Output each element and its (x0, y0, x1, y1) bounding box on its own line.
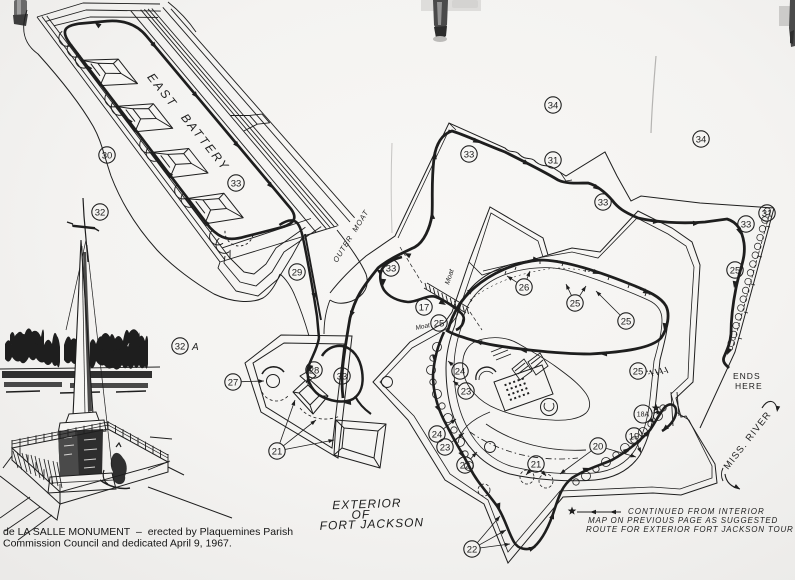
svg-text:25: 25 (570, 298, 581, 309)
svg-text:22: 22 (460, 460, 471, 471)
svg-text:A: A (191, 342, 199, 353)
svg-text:33: 33 (231, 178, 242, 189)
svg-text:31: 31 (548, 155, 559, 166)
svg-text:26: 26 (519, 282, 530, 293)
svg-text:22: 22 (467, 544, 478, 555)
svg-text:19: 19 (629, 431, 640, 442)
svg-text:24: 24 (432, 429, 443, 440)
svg-text:33: 33 (598, 197, 609, 208)
svg-text:de LA SALLE MONUMENT – erect: de LA SALLE MONUMENT – erected by Plaque… (3, 526, 293, 538)
svg-text:23: 23 (440, 442, 451, 453)
svg-text:25: 25 (633, 366, 644, 377)
svg-text:ENDS: ENDS (733, 371, 761, 381)
svg-text:29: 29 (292, 267, 303, 278)
svg-text:33: 33 (741, 219, 752, 230)
svg-text:30: 30 (102, 150, 113, 161)
svg-text:24: 24 (455, 366, 466, 377)
svg-text:32: 32 (95, 207, 106, 218)
svg-text:21: 21 (531, 459, 542, 470)
svg-text:18A: 18A (637, 412, 650, 419)
svg-text:32: 32 (175, 341, 186, 352)
svg-text:Commission Council and dedicat: Commission Council and dedicated April 9… (3, 538, 232, 550)
svg-text:33: 33 (464, 149, 475, 160)
svg-text:31: 31 (762, 208, 773, 219)
svg-text:MAP ON PREVIOUS PAGE AS SUGGES: MAP ON PREVIOUS PAGE AS SUGGESTED (588, 516, 778, 525)
svg-text:21: 21 (272, 446, 283, 457)
svg-text:33: 33 (386, 263, 397, 274)
svg-text:ROUTE FOR EXTERIOR FORT JACKSO: ROUTE FOR EXTERIOR FORT JACKSON TOUR (586, 525, 794, 534)
svg-text:CONTINUED FROM INTERIOR: CONTINUED FROM INTERIOR (628, 507, 765, 516)
svg-text:33: 33 (337, 371, 348, 382)
svg-text:25: 25 (434, 318, 445, 329)
svg-text:25: 25 (730, 265, 741, 276)
svg-text:23: 23 (461, 386, 472, 397)
svg-text:28: 28 (309, 365, 320, 376)
svg-text:34: 34 (548, 100, 559, 111)
svg-text:27: 27 (228, 377, 239, 388)
svg-text:34: 34 (696, 134, 707, 145)
svg-text:HERE: HERE (735, 381, 763, 391)
svg-text:17: 17 (419, 302, 430, 313)
svg-text:20: 20 (593, 441, 604, 452)
svg-text:25: 25 (621, 316, 632, 327)
